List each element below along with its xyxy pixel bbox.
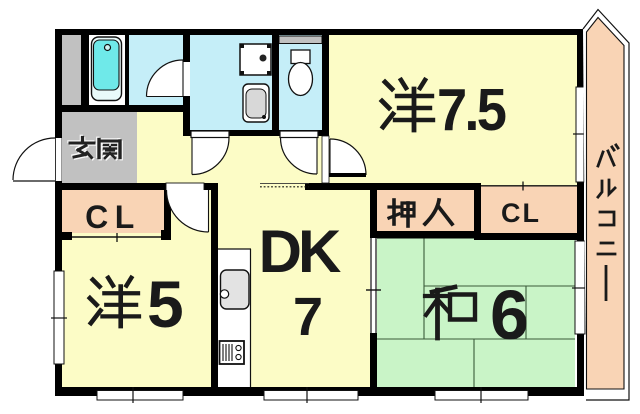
svg-text:7.5: 7.5 xyxy=(437,78,505,144)
svg-text:DK: DK xyxy=(259,218,341,285)
svg-text:5: 5 xyxy=(147,267,184,341)
svg-text:7: 7 xyxy=(293,287,323,347)
svg-text:6: 6 xyxy=(490,276,529,354)
svg-text:CL: CL xyxy=(85,199,141,235)
svg-text:CL: CL xyxy=(501,198,541,228)
